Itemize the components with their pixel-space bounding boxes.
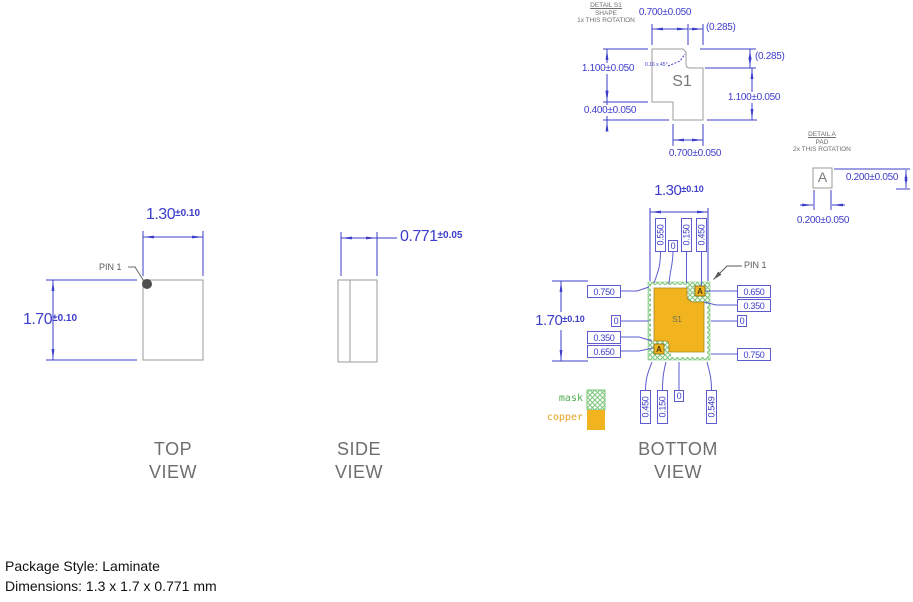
top-view-dim-width: 1.30±0.10 (136, 206, 210, 224)
side-view-dimensions (341, 232, 397, 276)
detail-s1-rotation: 1x THIS ROTATION (556, 17, 656, 25)
chamfer-note: 0.16 x 45° (645, 62, 671, 68)
s1-shape-label: S1 (665, 73, 699, 91)
callout-bottom-2: 0.150 (657, 390, 668, 424)
callout-top-3: 0.150 (681, 218, 692, 252)
package-drawing-page: DETAIL S1 SHAPE 1x THIS ROTATION 0.700±0… (0, 0, 913, 602)
top-view-body (143, 280, 203, 360)
footer-package-style: Package Style: Laminate (5, 558, 160, 574)
callout-right-2: 0.350 (737, 299, 771, 312)
detail-a-dim-width: 0.200±0.050 (787, 215, 859, 226)
callout-left-1: 0.750 (587, 285, 621, 298)
pin1-leader (128, 267, 144, 281)
callout-top-2: 0 (668, 240, 678, 252)
s1-dim-top-ref: (0.285) (706, 22, 764, 33)
s1-dim-bottom: 0.700±0.050 (655, 148, 735, 159)
callout-left-2: 0 (611, 315, 621, 327)
pad-a-bottom-left-label: A (654, 344, 664, 354)
top-view-linework (128, 267, 203, 360)
callout-right-1: 0.650 (737, 285, 771, 298)
side-view-dim-thickness: 0.771±0.05 (400, 228, 495, 246)
s1-dim-left-lower: 0.400±0.050 (567, 105, 653, 116)
callout-top-4: 0.450 (696, 218, 707, 252)
callout-bottom-3: 0 (674, 390, 684, 402)
callout-bottom-1: 0.450 (640, 390, 651, 424)
footer-dimensions: Dimensions: 1.3 x 1.7 x 0.771 mm (5, 578, 217, 594)
bottom-view-s1-label: S1 (666, 315, 688, 324)
callout-right-3: 0 (737, 315, 747, 327)
bottom-view-title: BOTTOM VIEW (628, 438, 728, 484)
callout-left-4: 0.650 (587, 345, 621, 358)
detail-a-header: DETAIL A PAD 2x THIS ROTATION (782, 131, 862, 154)
bottom-view-pin1-label: PIN 1 (744, 260, 767, 270)
side-view-title: SIDE VIEW (319, 438, 399, 484)
s1-dim-top: 0.700±0.050 (627, 7, 703, 18)
legend-copper-label: copper (529, 412, 583, 423)
detail-a-letter: A (813, 169, 832, 187)
top-view-title: TOP VIEW (133, 438, 213, 484)
callout-bottom-4: 0.549 (706, 390, 717, 424)
callout-top-1: 0.550 (655, 218, 666, 252)
drawing-linework (0, 0, 913, 602)
pad-a-top-right-label: A (695, 286, 705, 296)
s1-dim-right: 1.100±0.050 (716, 92, 792, 103)
mask-swatch (587, 390, 605, 410)
copper-swatch (587, 410, 605, 430)
detail-a-rotation: 2x THIS ROTATION (782, 146, 862, 154)
bottom-view-dim-height: 1.70±0.10 (522, 312, 598, 330)
legend-mask-label: mask (547, 393, 583, 404)
s1-dim-right-ref: (0.285) (755, 51, 813, 62)
detail-a-dim-height: 0.200±0.050 (840, 172, 904, 183)
top-view-dim-height: 1.70±0.10 (12, 311, 88, 329)
side-view-linework (338, 280, 377, 362)
callout-right-4: 0.750 (737, 348, 771, 361)
bottom-pin1-leader (714, 266, 743, 280)
s1-dim-left-upper: 1.100±0.050 (565, 63, 651, 74)
side-view-body (338, 280, 377, 362)
detail-a-title: DETAIL A (782, 131, 862, 139)
legend-swatch (587, 390, 605, 430)
callout-left-3: 0.350 (587, 331, 621, 344)
detail-a-subtitle: PAD (782, 139, 862, 147)
top-view-pin1-label: PIN 1 (99, 262, 122, 272)
bottom-view-dim-width: 1.30±0.10 (641, 182, 717, 200)
